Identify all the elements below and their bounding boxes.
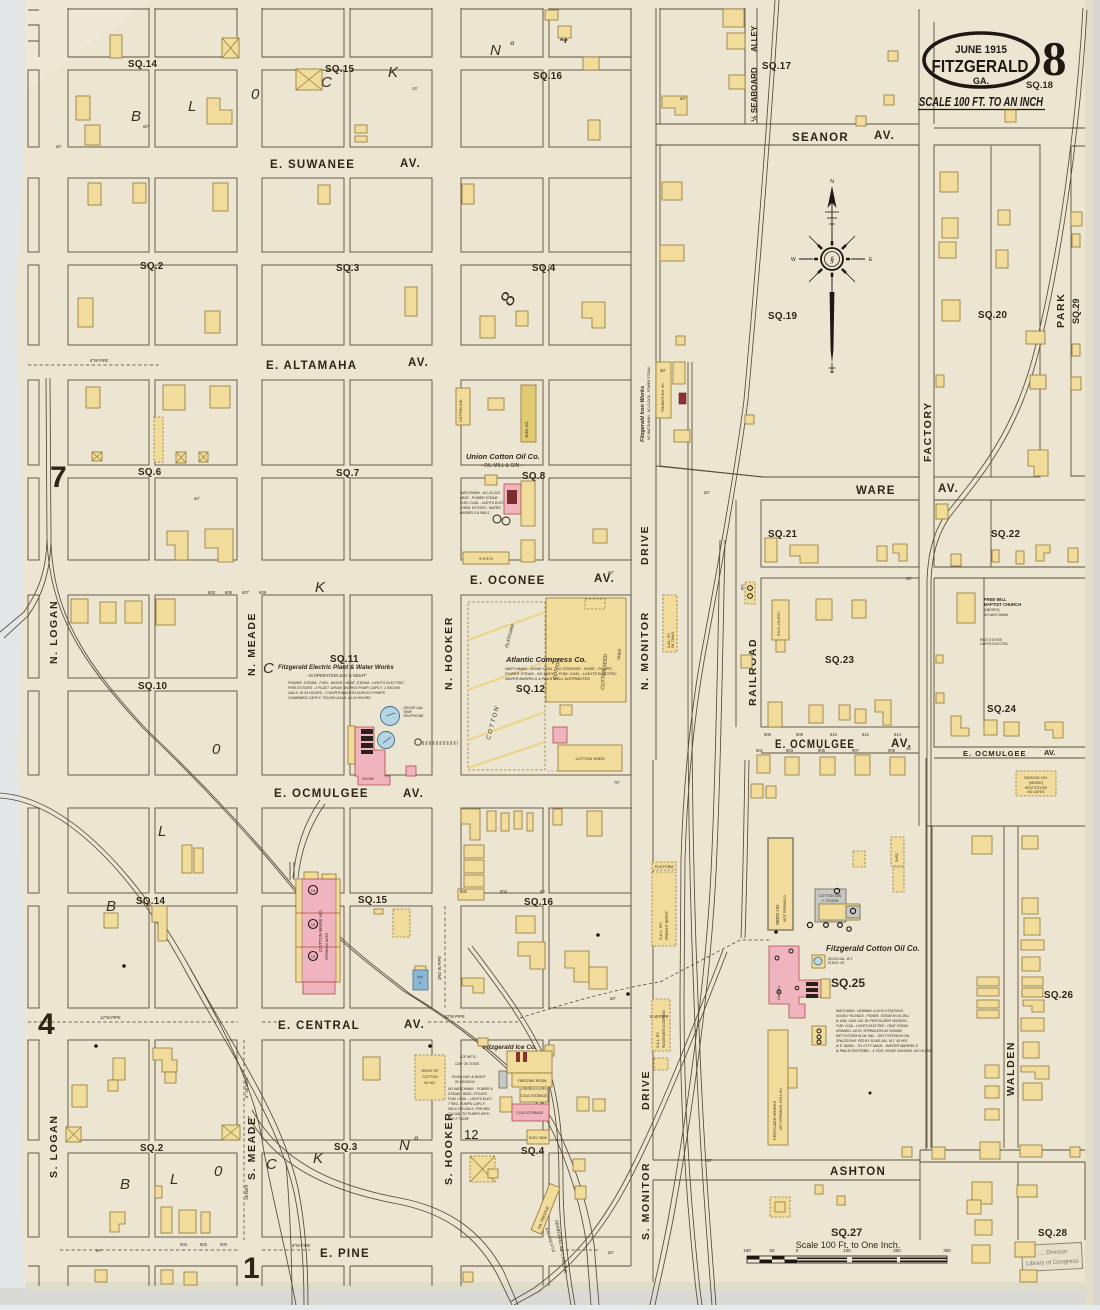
svg-text:L: L (170, 1171, 178, 1188)
svg-text:WARE: WARE (856, 485, 896, 497)
svg-text:0: 0 (212, 741, 221, 758)
svg-text:60': 60' (56, 144, 62, 149)
svg-text:FUEL COAL - LIGHTS ELECTRIC -: FUEL COAL - LIGHTS ELECTRIC - HEAT STEAM… (836, 1024, 909, 1028)
svg-text:ALLEY: ALLEY (750, 25, 759, 52)
svg-text:CAP. 30 TONS: CAP. 30 TONS (455, 1062, 479, 1066)
svg-text:NO WATCHMAN: NO WATCHMAN (984, 613, 1009, 617)
svg-text:N. MEADE: N. MEADE (246, 612, 258, 676)
svg-text:WALDEN: WALDEN (1005, 1041, 1017, 1096)
svg-text:ASHTON: ASHTON (830, 1166, 886, 1178)
svg-text:COTTON GIN: COTTON GIN (819, 894, 842, 898)
svg-text:50': 50' (660, 368, 666, 373)
svg-text:AV.: AV. (408, 357, 429, 369)
svg-text:ELEVD. 45': ELEVD. 45' (828, 961, 845, 965)
svg-text:602: 602 (200, 1242, 208, 1247)
svg-text:E. OCMULGEE: E. OCMULGEE (274, 788, 369, 800)
svg-text:S. LOGAN: S. LOGAN (48, 1114, 60, 1178)
svg-text:SEED HO.: SEED HO. (525, 421, 529, 438)
svg-text:910: 910 (830, 732, 838, 737)
svg-text:TELEPHONE: TELEPHONE (403, 714, 424, 718)
svg-text:15: 15 (311, 922, 316, 927)
svg-text:GRINNELL AUTO. SPRINKLERS AS S: GRINNELL AUTO. SPRINKLERS AS SHOWN, (836, 1029, 903, 1033)
svg-text:DRIVE: DRIVE (640, 1070, 652, 1110)
svg-text:SQ.14: SQ.14 (136, 896, 166, 907)
svg-text:908: 908 (796, 732, 804, 737)
svg-text:Fitzgerald Iron Works: Fitzgerald Iron Works (640, 386, 646, 442)
svg-text:SEANOR: SEANOR (792, 132, 849, 144)
svg-text:HOURLY ROUNDS - POWER- STEAM I: HOURLY ROUNDS - POWER- STEAM IN OIL MILL (836, 1014, 910, 1018)
svg-text:W: W (791, 257, 796, 263)
svg-text:C: C (263, 660, 274, 677)
svg-text:SQ.3: SQ.3 (336, 263, 360, 274)
svg-text:E. OCMULGEE: E. OCMULGEE (963, 749, 1027, 758)
svg-text:100: 100 (843, 1248, 851, 1253)
svg-text:SHED: SHED (895, 852, 899, 862)
svg-text:BAPTIST CHURCH: BAPTIST CHURCH (984, 602, 1021, 607)
svg-text:S.A.L. RY.: S.A.L. RY. (658, 922, 663, 940)
svg-text:STEAM - HEAT- STOVES: STEAM - HEAT- STOVES (448, 1092, 488, 1096)
svg-text:E. ALTAMAHA: E. ALTAMAHA (266, 360, 357, 372)
svg-text:B: B (120, 1176, 130, 1193)
svg-text:B: B (131, 108, 141, 125)
svg-text:FACTORY: FACTORY (922, 401, 934, 462)
svg-text:LIGHTS ELECTRIC: LIGHTS ELECTRIC (980, 642, 1009, 646)
svg-text:600: 600 (220, 1242, 228, 1247)
svg-text:500 & 250 GALS. PER MIN.: 500 & 250 GALS. PER MIN. (448, 1107, 490, 1111)
svg-text:Union Cotton Oil Co.: Union Cotton Oil Co. (466, 452, 540, 461)
svg-text:COTTON GIN: COTTON GIN (459, 399, 463, 422)
svg-text:36: 36 (906, 746, 911, 751)
svg-text:GALS. IN 24 HOURS - 2 WORTHING: GALS. IN 24 HOURS - 2 WORTHINGTON DUPLEX… (288, 691, 386, 695)
svg-text:8: 8 (1042, 31, 1067, 86)
svg-text:200: 200 (893, 1248, 901, 1253)
svg-text:PARK: PARK (1055, 293, 1067, 328)
svg-text:912: 912 (862, 732, 870, 737)
svg-text:½ SEABOARD: ½ SEABOARD (750, 67, 759, 122)
svg-text:SQ.2: SQ.2 (140, 1143, 164, 1154)
svg-text:WATCHMAN - NEWMAN CLOCK 6 STAT: WATCHMAN - NEWMAN CLOCK 6 STATIONS, (836, 1009, 904, 1013)
svg-text:FREEZING ROOM: FREEZING ROOM (518, 1079, 547, 1083)
svg-text:SQ.7: SQ.7 (336, 468, 360, 479)
svg-text:Atlantic Compress Co.: Atlantic Compress Co. (505, 655, 586, 664)
svg-text:AV.: AV. (1044, 748, 1055, 757)
svg-text:60': 60' (143, 124, 149, 129)
svg-text:W. HO.: W. HO. (424, 1081, 436, 1085)
svg-text:Y- TO RUN: Y- TO RUN (822, 899, 839, 903)
svg-text:AV.: AV. (403, 788, 424, 800)
svg-text:N: N (490, 42, 501, 59)
svg-text:801: 801 (460, 889, 468, 894)
svg-text:NOT SPRINKLD. HULL HO.: NOT SPRINKLD. HULL HO. (779, 1087, 783, 1130)
svg-text:ENGINE: ENGINE (362, 777, 374, 781)
svg-text:E. CENTRAL: E. CENTRAL (278, 1020, 360, 1032)
svg-text:60': 60' (704, 490, 710, 495)
svg-text:60': 60' (680, 96, 686, 101)
svg-text:BARRELS & PAILS: BARRELS & PAILS (460, 511, 490, 515)
svg-text:GA.: GA. (973, 76, 989, 86)
svg-text:FUEL COAL - LIGHTS ELEC.: FUEL COAL - LIGHTS ELEC. (448, 1097, 493, 1101)
svg-text:901: 901 (756, 748, 764, 753)
svg-text:S.A.L. RY.: S.A.L. RY. (656, 1032, 660, 1048)
svg-text:B: B (106, 898, 116, 915)
svg-text:L: L (188, 98, 196, 115)
svg-text:12"W.PIPE: 12"W.PIPE (100, 1015, 121, 1020)
svg-text:AV.: AV. (874, 130, 895, 142)
svg-text:3RD W.PIPE: 3RD W.PIPE (437, 956, 442, 980)
svg-text:(NEGRO): (NEGRO) (984, 608, 1000, 612)
svg-text:NO LIGHTS: NO LIGHTS (1027, 790, 1044, 794)
svg-text:C: C (321, 74, 332, 91)
svg-text:SQ.6: SQ.6 (138, 467, 162, 478)
svg-text:FERTILIZER WORKS: FERTILIZER WORKS (772, 1101, 777, 1140)
svg-text:7: 7 (50, 461, 67, 494)
svg-text:SQ.2: SQ.2 (140, 261, 164, 272)
svg-text:JUNE 1915: JUNE 1915 (955, 44, 1007, 56)
svg-text:903: 903 (786, 748, 794, 753)
svg-text:FITZGERALD: FITZGERALD (932, 56, 1029, 76)
svg-text:1: 1 (243, 1252, 260, 1285)
svg-text:Fitzgerald Ice Co.: Fitzgerald Ice Co. (483, 1044, 537, 1051)
svg-text:804: 804 (500, 889, 508, 894)
svg-text:SCHOOL HO.: SCHOOL HO. (1024, 776, 1048, 780)
svg-text:SQ.29: SQ.29 (1071, 298, 1081, 324)
svg-text:AV.: AV. (938, 483, 959, 495)
svg-text:60': 60' (608, 570, 614, 575)
svg-text:909: 909 (888, 748, 896, 753)
svg-text:COTTON: COTTON (422, 1075, 438, 1079)
svg-text:SQ.19: SQ.19 (768, 311, 798, 322)
svg-text:ICE MF'G.: ICE MF'G. (460, 1055, 477, 1059)
svg-text:E. OCONEE: E. OCONEE (470, 575, 546, 587)
svg-text:8"W.PIPE: 8"W.PIPE (90, 358, 109, 363)
svg-text:SQ.16: SQ.16 (524, 897, 554, 908)
svg-text:R.M.E. CHURCH: R.M.E. CHURCH (777, 611, 781, 636)
svg-text:SQ.24: SQ.24 (987, 704, 1017, 715)
svg-text:SQ.15: SQ.15 (358, 895, 388, 906)
svg-text:12: 12 (464, 1127, 478, 1142)
svg-text:SCALE 100 FT. TO AN INCH: SCALE 100 FT. TO AN INCH (919, 94, 1043, 109)
svg-text:PLATFORM: PLATFORM (655, 865, 673, 869)
svg-text:607: 607 (242, 590, 250, 595)
svg-text:S. MEADE: S. MEADE (246, 1116, 258, 1180)
svg-text:HEAT - POWER STEAM: HEAT - POWER STEAM (460, 496, 497, 500)
svg-text:SQ.4: SQ.4 (521, 1146, 545, 1157)
svg-text:FUEL COAL - LIGHTS ELEC.: FUEL COAL - LIGHTS ELEC. (460, 501, 505, 505)
svg-text:WET SYSTEM IN OIL MILL - DRY S: WET SYSTEM IN OIL MILL - DRY SYSTEM IN G… (836, 1034, 910, 1038)
svg-text:8" SEWER: 8" SEWER (244, 1078, 249, 1098)
svg-text:906: 906 (764, 732, 772, 737)
svg-text:SQ.4: SQ.4 (532, 263, 556, 274)
svg-text:SQ.26: SQ.26 (1044, 990, 1074, 1001)
svg-text:Fitzgerald Electric Plant & Wa: Fitzgerald Electric Plant & Water Works (278, 664, 394, 671)
svg-text:7 REG. PUMPS CAPCY: 7 REG. PUMPS CAPCY (448, 1102, 485, 1106)
svg-text:60': 60' (610, 996, 616, 1001)
svg-text:4: 4 (38, 1008, 55, 1041)
svg-text:100: 100 (743, 1248, 751, 1253)
svg-text:2" COAL TO PUMPS WITH: 2" COAL TO PUMPS WITH (447, 1112, 490, 1116)
svg-text:S. HOOKER: S. HOOKER (443, 1112, 455, 1185)
svg-text:COLD STORAGE: COLD STORAGE (517, 1111, 545, 1115)
svg-text:FIRE EXTGRS - 2 PLATT. DRUM. W: FIRE EXTGRS - 2 PLATT. DRUM. WORKS PUMP.… (288, 686, 400, 690)
svg-text:609: 609 (259, 590, 267, 595)
svg-text:SPRINKLD AUTO: SPRINKLD AUTO (325, 933, 329, 960)
svg-text:K: K (315, 579, 326, 596)
svg-text:AV.: AV. (404, 1019, 425, 1031)
svg-text:SQ.16: SQ.16 (533, 71, 563, 82)
svg-text:100' 2" HOSE: 100' 2" HOSE (448, 1117, 470, 1121)
svg-text:E. SUWANEE: E. SUWANEE (270, 159, 355, 171)
svg-text:N. MONITOR: N. MONITOR (639, 611, 651, 690)
svg-text:OIL TANKS: OIL TANKS (671, 632, 675, 648)
svg-text:SQ.22: SQ.22 (991, 529, 1021, 540)
svg-text:- IN OPERATION DAY & NIGHT -: - IN OPERATION DAY & NIGHT - (306, 673, 369, 678)
svg-text:NO WATCHMAN - POWER &: NO WATCHMAN - POWER & (448, 1087, 493, 1091)
svg-text:E. PINE: E. PINE (320, 1248, 370, 1260)
svg-text:SQ.20: SQ.20 (978, 310, 1008, 321)
svg-text:K: K (388, 64, 399, 81)
svg-text:& 6" MAIN - TO CITY MAIN - WAT: & 6" MAIN - TO CITY MAIN - WATER BARRELS (836, 1044, 918, 1048)
svg-text:604: 604 (180, 1242, 188, 1247)
svg-text:AV.: AV. (400, 158, 421, 170)
svg-text:0: 0 (251, 86, 260, 103)
svg-text:NO WATCHMAN - NO CLOCK - POWER: NO WATCHMAN - NO CLOCK - POWER STEAM (647, 367, 651, 440)
svg-text:S H E D: S H E D (479, 557, 493, 561)
svg-text:FOUNDRY & M. SH.: FOUNDRY & M. SH. (661, 383, 665, 412)
svg-text:COLD STORAGE: COLD STORAGE (521, 1094, 549, 1098)
svg-text:Fitzgerald Cotton Oil Co.: Fitzgerald Cotton Oil Co. (826, 944, 920, 953)
svg-text:SEED HO.: SEED HO. (775, 903, 780, 925)
svg-text:36': 36' (906, 576, 912, 581)
svg-text:50': 50' (706, 1158, 712, 1163)
svg-text:80: 80 (540, 889, 545, 894)
svg-text:RUNS DAY & NIGHT: RUNS DAY & NIGHT (452, 1075, 487, 1079)
svg-text:WATER BARRELS & PAILS WELL DIS: WATER BARRELS & PAILS WELL DISTRIBUTED (505, 677, 590, 681)
svg-text:SHED: SHED (616, 648, 622, 660)
svg-text:S. MONITOR: S. MONITOR (640, 1162, 652, 1240)
svg-text:SQ.14: SQ.14 (128, 59, 158, 70)
svg-text:N. LOGAN: N. LOGAN (48, 600, 60, 664)
svg-text:10"W.PIPE.: 10"W.PIPE. (444, 1014, 466, 1019)
svg-text:SQ.12: SQ.12 (516, 684, 546, 695)
svg-text:300: 300 (943, 1248, 951, 1253)
svg-text:SQ.17: SQ.17 (762, 61, 792, 72)
svg-text:SQ.3: SQ.3 (334, 1142, 358, 1153)
svg-text:SQ.10: SQ.10 (138, 681, 168, 692)
svg-text:COTTON WARE HO.: COTTON WARE HO. (318, 909, 323, 952)
svg-text:(NEGRO): (NEGRO) (1029, 781, 1043, 785)
svg-text:60': 60' (194, 496, 200, 501)
svg-text:DRIVE: DRIVE (639, 525, 651, 565)
svg-text:0: 0 (214, 1163, 223, 1180)
svg-text:- OIL MILL & GIN -: - OIL MILL & GIN - (481, 463, 523, 469)
svg-text:COTTON SHED: COTTON SHED (575, 756, 604, 761)
svg-text:SPACED 8'x8'. FED BY 30,000 GA: SPACED 8'x8'. FED BY 30,000 GAL. W.T. 40… (836, 1039, 908, 1043)
svg-text:60': 60' (608, 1250, 614, 1255)
svg-text:& GIN, GAS OIL IN FERTILIZER W: & GIN, GAS OIL IN FERTILIZER WORKS - (836, 1019, 910, 1023)
svg-text:603: 603 (208, 590, 216, 595)
svg-text:CHEM. EXTGRS - WATER: CHEM. EXTGRS - WATER (460, 506, 501, 510)
svg-text:907: 907 (852, 748, 860, 753)
svg-text:L: L (158, 823, 166, 840)
svg-text:15: 15 (311, 954, 316, 959)
svg-text:& PAILS DISTRIBD - 4 YDS. HOSE: & PAILS DISTRIBD - 4 YDS. HOSE SHOWN, NO… (836, 1049, 934, 1053)
svg-text:N. HOOKER: N. HOOKER (443, 616, 455, 690)
svg-text:RIGHT OF: RIGHT OF (421, 1069, 439, 1073)
svg-text:E.W.PIPE: E.W.PIPE (650, 1014, 669, 1019)
svg-text:50: 50 (769, 1248, 775, 1253)
svg-text:905: 905 (818, 748, 826, 753)
svg-text:8"W.PIPE: 8"W.PIPE (292, 1243, 311, 1248)
svg-text:POWER- STEAM - FUEL- WOOD - HE: POWER- STEAM - FUEL- WOOD - HEAT- STEAM … (288, 681, 404, 685)
svg-text:15: 15 (311, 888, 316, 893)
svg-text:SQ.27: SQ.27 (831, 1227, 862, 1239)
svg-text:IN SEASON: IN SEASON (455, 1080, 475, 1084)
svg-text:N: N (830, 179, 834, 185)
svg-text:WATCHMAN - NO CLOCK: WATCHMAN - NO CLOCK (460, 491, 501, 495)
svg-text:§: § (830, 256, 834, 265)
svg-text:SQ.23: SQ.23 (825, 655, 855, 666)
svg-text:WATCHMAN - NONE COAL - LG STA: WATCHMAN - NONE COAL - LG STATIONS - HOS… (505, 667, 612, 671)
svg-text:NOT SPRINKLD.: NOT SPRINKLD. (783, 894, 787, 922)
svg-text:FREIGHT DEPOT: FREIGHT DEPOT (665, 910, 669, 940)
svg-text:N: N (399, 1137, 410, 1154)
svg-text:(ha): (ha) (417, 975, 423, 979)
svg-text:RY.: RY. (740, 583, 745, 590)
svg-text:ELEV. TANK: ELEV. TANK (529, 1136, 548, 1140)
svg-text:POWER STEAM - NO NIGHT - FUEL: POWER STEAM - NO NIGHT - FUEL COAL - LIG… (505, 672, 617, 676)
svg-text:K: K (313, 1150, 324, 1167)
svg-text:C: C (266, 1156, 277, 1173)
svg-text:COMBINED CAPCY. 700,000 GALS.: COMBINED CAPCY. 700,000 GALS. IN 24 HOUR… (288, 696, 371, 700)
svg-text:70': 70' (614, 780, 620, 785)
svg-text:SQ.28: SQ.28 (1038, 1228, 1068, 1239)
svg-text:RAILROAD: RAILROAD (747, 638, 759, 706)
svg-text:15': 15' (412, 86, 418, 91)
svg-text:SQ.25: SQ.25 (831, 976, 865, 990)
svg-text:914: 914 (894, 732, 902, 737)
svg-text:60': 60' (96, 1248, 102, 1253)
svg-text:605: 605 (225, 590, 233, 595)
svg-text:SEWER: SEWER (244, 1185, 249, 1200)
svg-text:SQ.8: SQ.8 (522, 471, 546, 482)
